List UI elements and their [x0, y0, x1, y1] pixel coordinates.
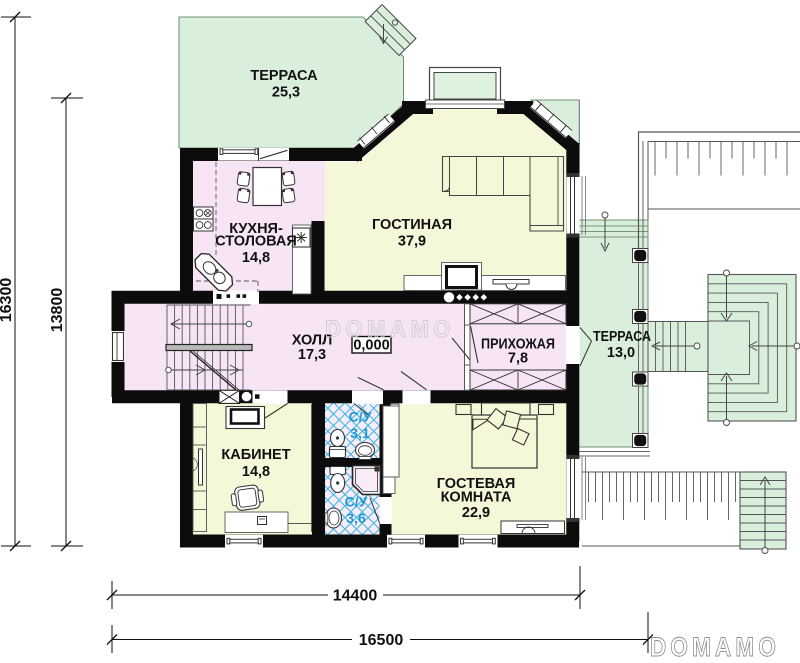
svg-text:С/У: С/У [349, 409, 372, 425]
svg-text:ТЕРРАСА: ТЕРРАСА [593, 329, 651, 345]
svg-text:3,1: 3,1 [350, 425, 370, 441]
svg-text:3,6: 3,6 [346, 510, 366, 526]
svg-text:КАБИНЕТ: КАБИНЕТ [221, 447, 290, 463]
svg-text:22,9: 22,9 [462, 505, 490, 521]
svg-text:37,9: 37,9 [398, 234, 426, 250]
svg-text:14400: 14400 [333, 588, 378, 605]
svg-text:DOMAMO: DOMAMO [650, 632, 780, 662]
svg-text:14,8: 14,8 [242, 464, 270, 480]
svg-text:СТОЛОВАЯ: СТОЛОВАЯ [215, 234, 297, 250]
svg-text:7,8: 7,8 [508, 351, 528, 367]
svg-text:13800: 13800 [49, 288, 66, 333]
svg-text:14,8: 14,8 [242, 250, 270, 266]
svg-text:DOMAMO: DOMAMO [325, 316, 455, 343]
svg-text:16300: 16300 [0, 278, 15, 323]
svg-text:С/У: С/У [345, 494, 368, 510]
svg-text:ГОСТИНАЯ: ГОСТИНАЯ [372, 217, 452, 233]
svg-text:ТЕРРАСА: ТЕРРАСА [250, 68, 318, 84]
svg-text:17,3: 17,3 [298, 347, 326, 363]
svg-text:16500: 16500 [359, 632, 404, 649]
svg-text:КОМНАТА: КОМНАТА [441, 490, 512, 506]
svg-text:13,0: 13,0 [607, 345, 635, 361]
svg-text:25,3: 25,3 [272, 85, 300, 101]
